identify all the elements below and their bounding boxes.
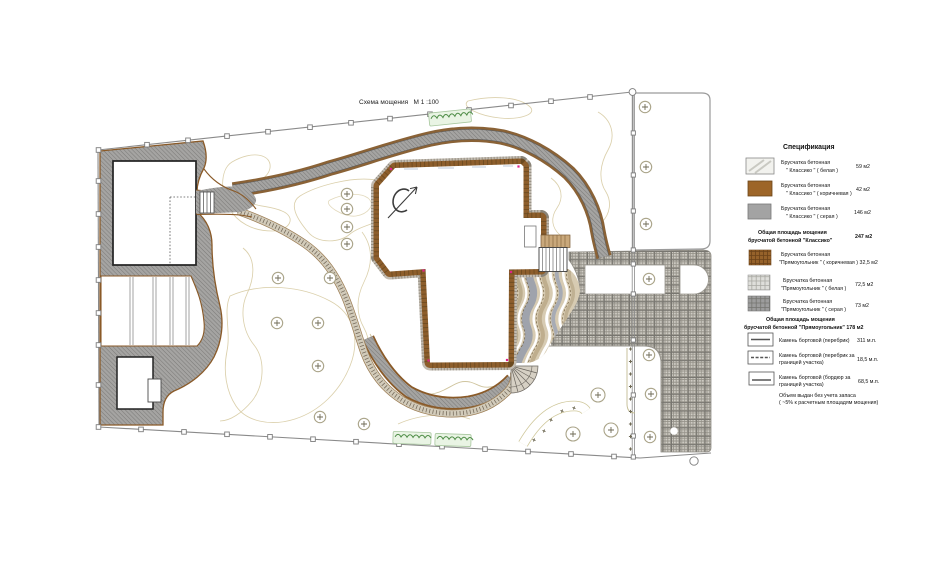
svg-text:73 м2: 73 м2 — [855, 303, 869, 309]
svg-text:Камень бортовой (перебрик за: Камень бортовой (перебрик за — [779, 352, 855, 359]
svg-text:Общая площадь мощения: Общая площадь мощения — [758, 229, 827, 236]
svg-text:247 м2: 247 м2 — [855, 234, 872, 240]
svg-text:границей участка): границей участка) — [779, 359, 824, 366]
svg-text:Общая площадь мощения: Общая площадь мощения — [766, 316, 835, 323]
svg-text:" Классико " ( коричневая ): " Классико " ( коричневая ) — [786, 191, 852, 197]
svg-text:Камень бортовой (бордюр за: Камень бортовой (бордюр за — [779, 374, 851, 381]
svg-text:брусчатой бетонной "Классико": брусчатой бетонной "Классико" — [748, 237, 833, 244]
svg-text:границей участка): границей участка) — [779, 381, 824, 388]
svg-text:Брусчатка бетонная: Брусчатка бетонная — [781, 160, 830, 166]
svg-text:Схема мощения М 1 :100: Схема мощения М 1 :100 — [359, 99, 439, 106]
svg-text:18,5 м.п.: 18,5 м.п. — [857, 357, 878, 363]
svg-text:"Прямоугольник " ( белая ): "Прямоугольник " ( белая ) — [781, 286, 846, 292]
svg-text:"Прямоугольник " ( коричневая: "Прямоугольник " ( коричневая ) 32,5 м2 — [779, 260, 878, 266]
svg-text:"Прямоугольник " ( серая ): "Прямоугольник " ( серая ) — [781, 307, 846, 313]
svg-text:" Классико " ( белая ): " Классико " ( белая ) — [786, 168, 838, 174]
svg-text:( ~5% к расчетным площадям мощ: ( ~5% к расчетным площадям мощения) — [779, 400, 878, 406]
svg-text:Брусчатка бетонная: Брусчатка бетонная — [781, 206, 830, 212]
svg-text:72,5 м2: 72,5 м2 — [855, 282, 873, 288]
svg-text:59 м2: 59 м2 — [856, 164, 870, 170]
svg-text:Спецификация: Спецификация — [783, 144, 834, 151]
svg-text:" Классико " ( серая ): " Классико " ( серая ) — [786, 214, 838, 220]
svg-text:146 м2: 146 м2 — [854, 210, 871, 216]
svg-text:Брусчатка бетонная: Брусчатка бетонная — [781, 252, 830, 258]
svg-text:брусчатой бетонной "Прямоуголь: брусчатой бетонной "Прямоугольник" 178 м… — [744, 324, 864, 331]
svg-text:Брусчатка бетонная: Брусчатка бетонная — [783, 299, 832, 305]
svg-text:Объем выдан без учета запаса: Объем выдан без учета запаса — [779, 393, 856, 399]
svg-text:68,5 м.п.: 68,5 м.п. — [858, 379, 879, 385]
svg-text:Камень бортовой (перебрик): Камень бортовой (перебрик) — [779, 337, 850, 344]
svg-text:311 м.п.: 311 м.п. — [857, 338, 876, 344]
svg-text:Брусчатка бетонная: Брусчатка бетонная — [783, 278, 832, 284]
svg-text:Брусчатка бетонная: Брусчатка бетонная — [781, 183, 830, 189]
svg-text:42 м2: 42 м2 — [856, 187, 870, 193]
